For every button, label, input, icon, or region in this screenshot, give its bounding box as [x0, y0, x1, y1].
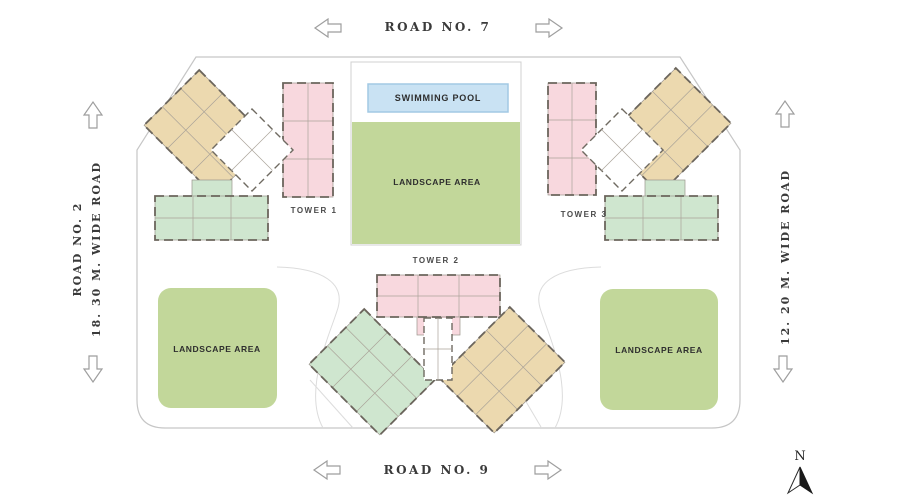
road-label-left: ROAD NO. 2 18. 30 M. WIDE ROAD	[68, 99, 108, 399]
tower-3-pink-wing	[548, 83, 596, 195]
north-label: N	[780, 449, 820, 464]
landscape-center-label: LANDSCAPE AREA	[362, 177, 512, 187]
top-right-arrow-icon	[536, 19, 562, 37]
road-label-right: 12. 20 M. WIDE ROAD	[776, 107, 796, 407]
tower-2-core	[424, 318, 452, 380]
road-left-name: ROAD NO. 2	[68, 99, 87, 399]
north-arrow-icon	[788, 467, 812, 493]
road-right-width-note: 12. 20 M. WIDE ROAD	[776, 107, 795, 407]
road-label-bottom: ROAD NO. 9	[337, 463, 537, 477]
bottom-right-arrow-icon	[535, 461, 561, 479]
tower-1-pink-wing	[283, 83, 333, 197]
tower-3-label: TOWER 3	[534, 210, 634, 219]
landscape-left-label: LANDSCAPE AREA	[142, 344, 292, 354]
tower-1-label: TOWER 1	[264, 206, 364, 215]
site-plan-page: ROAD NO. 7 ROAD NO. 9 ROAD NO. 2 18. 30 …	[0, 0, 900, 500]
landscape-right-label: LANDSCAPE AREA	[584, 345, 734, 355]
tower-2-label: TOWER 2	[386, 256, 486, 265]
site-plan-drawing	[0, 0, 900, 500]
road-label-top: ROAD NO. 7	[338, 20, 538, 34]
swimming-pool-label: SWIMMING POOL	[368, 93, 508, 103]
road-left-width-note: 18. 30 M. WIDE ROAD	[87, 99, 106, 399]
